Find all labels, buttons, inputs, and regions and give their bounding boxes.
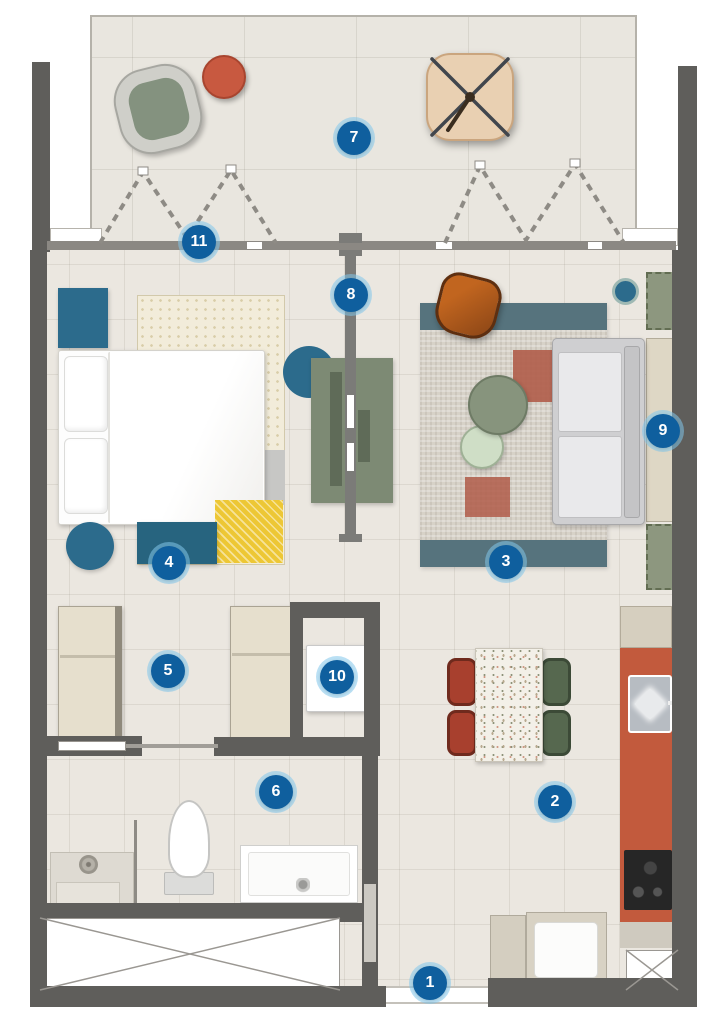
kitchen-counter-beige (620, 606, 672, 648)
bathroom-door-track (126, 744, 218, 748)
coffee-table-large (468, 375, 528, 435)
toilet-bowl (168, 800, 210, 878)
label-8-divider: 8 (334, 278, 368, 312)
label-9-wallunit: 9 (646, 414, 680, 448)
wall-right (672, 250, 697, 1007)
kitchen-counter-end (620, 922, 672, 948)
sliding-door-panel-top (347, 395, 354, 428)
entry-bench-cushion (534, 922, 598, 978)
dining-chair-red-top (447, 658, 477, 706)
bathroom-pocket-door (58, 741, 126, 751)
cooktop (624, 850, 672, 910)
wardrobe-right-rail (232, 653, 290, 656)
tv-divider-shelf-left (330, 372, 342, 486)
label-5-wardrobe: 5 (151, 654, 185, 688)
bed-yellow-throw (215, 500, 283, 563)
label-11-folding-door: 11 (182, 225, 216, 259)
wardrobe-left (58, 606, 122, 737)
hall-door-leaf (364, 884, 376, 962)
wall-left (30, 250, 47, 1007)
facade-door-gap-2 (436, 242, 452, 249)
label-2-kitchen: 2 (538, 785, 572, 819)
dining-table (475, 648, 543, 762)
niche-wall-left (290, 602, 303, 756)
sofa-seat-bottom (558, 436, 622, 518)
label-7-balcony: 7 (337, 121, 371, 155)
bedroom-rug-gray-patch (263, 450, 285, 505)
facade-door-gap-1 (247, 242, 262, 249)
label-3-living: 3 (489, 545, 523, 579)
plant-pot (612, 278, 639, 305)
balcony-pouf (202, 55, 246, 99)
shaft-large (40, 918, 340, 990)
shower-glass-panel (134, 820, 137, 906)
label-4-bedroom: 4 (152, 546, 186, 580)
dining-chair-green-top (541, 658, 571, 706)
bed-pillow-top (64, 356, 108, 432)
wall-balcony-right (678, 66, 697, 252)
label-1-entrance: 1 (413, 966, 447, 1000)
wall-balcony-left (32, 62, 50, 252)
label-10-washer: 10 (320, 660, 354, 694)
wall-bottom-right (488, 978, 697, 1007)
wardrobe-left-rail (60, 655, 120, 658)
shower-shelf (56, 882, 120, 905)
dining-chair-green-bottom (541, 710, 571, 756)
balcony-umbrella-canopy (426, 53, 514, 141)
bedroom-stool (66, 522, 114, 570)
niche-wall-right (364, 602, 380, 756)
wardrobe-left-door-edge (115, 606, 122, 737)
entry-threshold-line-inner (386, 1002, 488, 1004)
facade-track-anchor (339, 233, 362, 243)
tv-divider-shelf-right (358, 410, 370, 462)
facade-door-gap-3 (588, 242, 602, 249)
bed-pillow-bottom (64, 438, 108, 514)
bathroom-wall-right (214, 737, 380, 756)
sliding-door-panel-bottom (347, 443, 354, 471)
sliding-track-cap-bottom (339, 534, 362, 542)
dining-chair-red-bottom (447, 710, 477, 756)
shower-drain (79, 855, 98, 874)
wall-bottom-left (30, 986, 386, 1007)
entry-cabinet (490, 915, 526, 987)
wardrobe-right (230, 606, 292, 738)
living-rug-rust-patch-bottom (465, 477, 510, 517)
bed-duvet (108, 352, 263, 523)
floor-plan: 1 2 3 4 5 6 7 8 9 10 11 (0, 0, 725, 1024)
vanity-faucet (296, 878, 310, 900)
sofa-backrest (624, 346, 640, 518)
nightstand (58, 288, 108, 348)
label-6-bathroom: 6 (259, 775, 293, 809)
sofa-seat-top (558, 352, 622, 432)
